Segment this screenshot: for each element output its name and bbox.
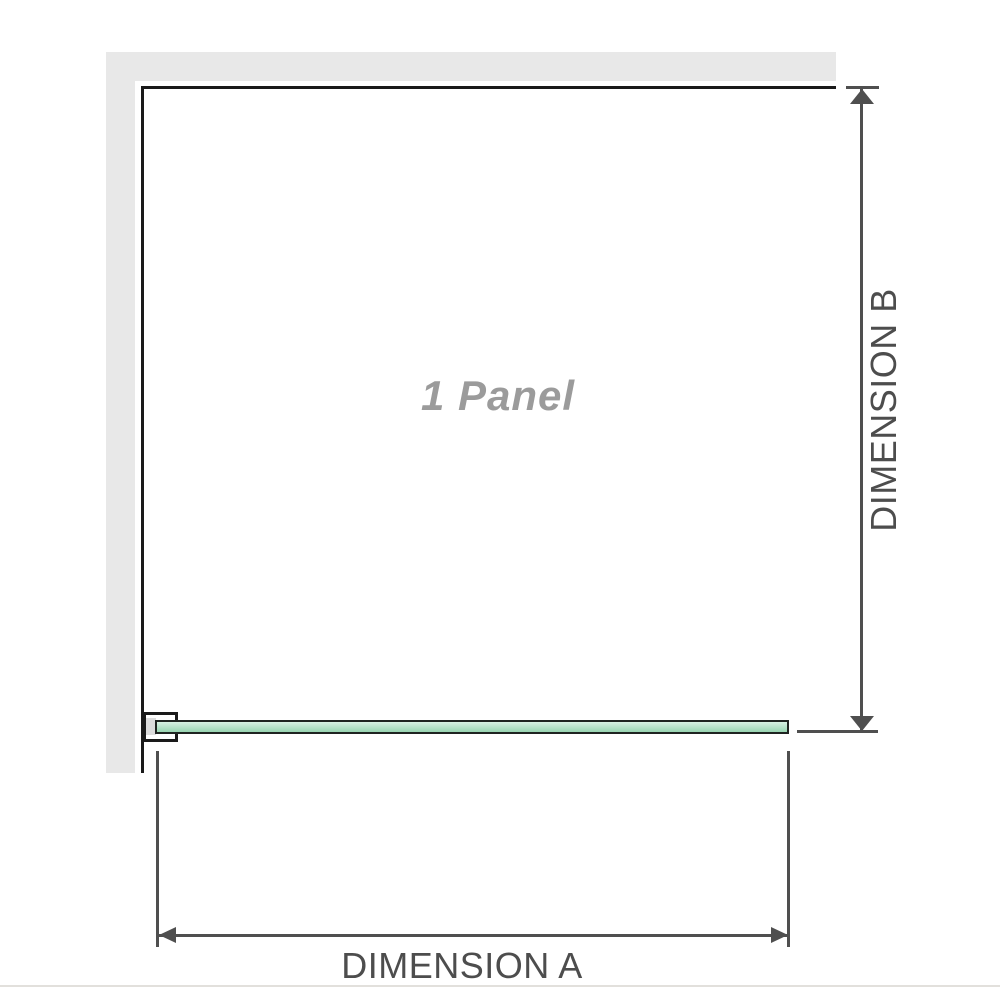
dimension-b-label: DIMENSION B xyxy=(864,210,904,610)
dimension-a-line xyxy=(159,934,788,937)
arrow-right-icon xyxy=(771,927,788,943)
arrow-down-icon xyxy=(850,716,874,731)
shower-panel-diagram: 1 Panel DIMENSION B DIMENSION A xyxy=(0,0,1000,1000)
wall-top xyxy=(106,52,836,81)
dimension-a-label: DIMENSION A xyxy=(152,946,772,986)
panel-count-label: 1 Panel xyxy=(421,372,575,420)
dimension-a-left-extension xyxy=(156,751,159,947)
arrow-up-icon xyxy=(850,89,874,104)
bottom-divider-line xyxy=(0,985,1000,987)
wall-left xyxy=(106,52,135,773)
glass-panel-bar xyxy=(155,720,789,734)
arrow-left-icon xyxy=(159,927,176,943)
dimension-a-right-extension xyxy=(787,751,790,947)
panel-area: 1 Panel xyxy=(144,87,836,717)
